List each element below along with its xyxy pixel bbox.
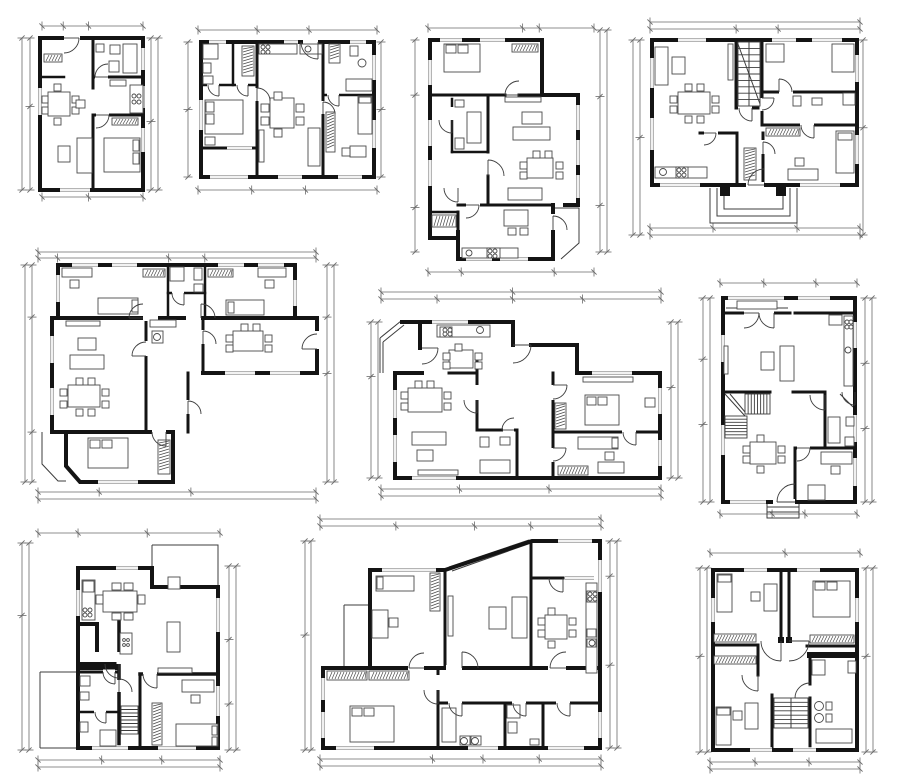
floor-plan-03 (411, 24, 612, 277)
floor-plan-sheet (0, 0, 900, 783)
floor-plan-02 (184, 26, 386, 195)
floor-plan-08 (18, 529, 241, 772)
floor-plan-10 (696, 549, 878, 774)
floor-plan-09 (301, 515, 622, 771)
plans-canvas (0, 0, 900, 783)
floor-plan-07 (699, 279, 877, 519)
floor-plan-06 (367, 288, 683, 501)
floor-plan-04 (629, 18, 868, 240)
floor-plan-01 (18, 22, 163, 202)
floor-plan-05 (21, 248, 339, 504)
